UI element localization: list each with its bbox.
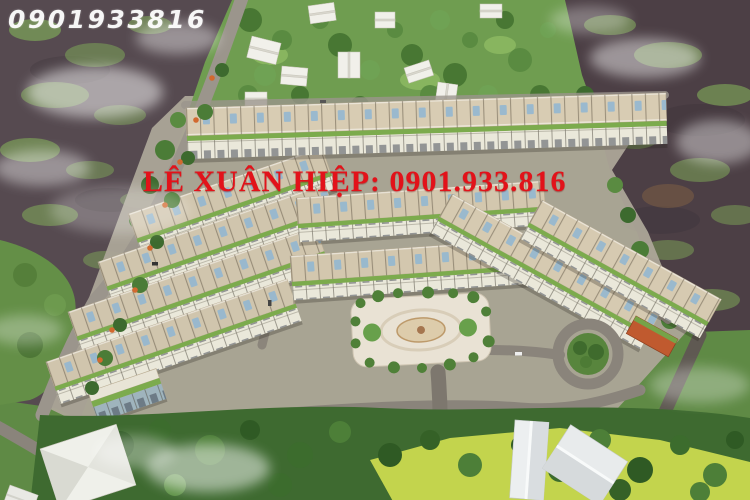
- watermark-agent-center: LÊ XUÂN HIỆP: 0901.933.816: [143, 165, 567, 199]
- watermark-phone-top: 0901933816: [8, 5, 207, 34]
- aerial-render-scene: 0901933816 LÊ XUÂN HIỆP: 0901.933.816: [0, 0, 750, 500]
- roundabout: [558, 324, 618, 384]
- scene-graphics: [0, 0, 750, 500]
- warehouse-building: [510, 420, 549, 500]
